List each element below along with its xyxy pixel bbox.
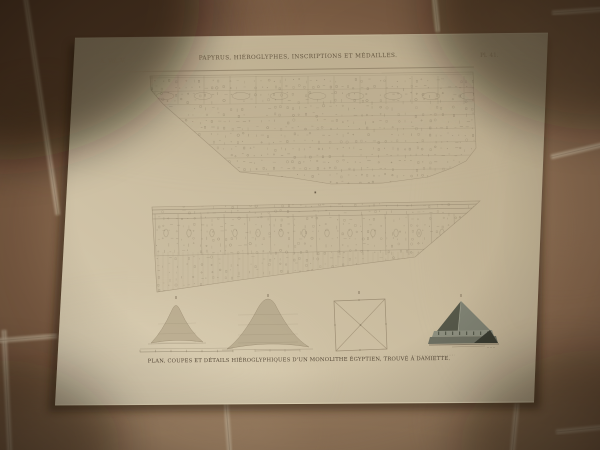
- plate-number: Pl. 41.: [480, 52, 499, 59]
- plate-drawing: [0, 0, 600, 450]
- figure-number-mark: [315, 192, 317, 194]
- photo-of-engraved-plate: A. Vol. V. PAPYRUS, HIÉROGLYPHES, INSCRI…: [0, 0, 600, 450]
